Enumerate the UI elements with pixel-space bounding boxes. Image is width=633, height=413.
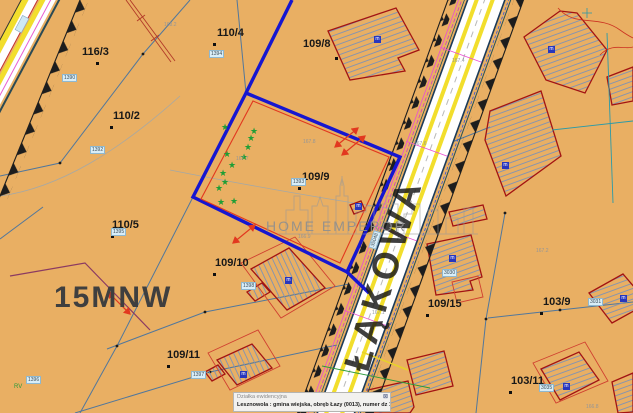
parcel-point-dot (426, 314, 429, 317)
zoning-label: 15MNW (54, 281, 172, 315)
tree-symbol: ★ (215, 184, 223, 193)
point-id-box: 1394 (209, 50, 224, 58)
land-use-label: RV (14, 384, 22, 390)
building-mark: m (620, 295, 627, 302)
elevation-label: 166.8 (586, 404, 599, 410)
elevation-label: 167.6 (414, 141, 427, 147)
parcel-point-dot (335, 57, 338, 60)
building-mark: m (563, 383, 570, 390)
parcel-point-dot (540, 312, 543, 315)
point-id-box: 3030 (442, 269, 457, 277)
tree-symbol: ★ (244, 143, 252, 152)
point-id-box: 1398 (241, 282, 256, 290)
building-mark: m (502, 162, 509, 169)
tree-symbol: ★ (228, 161, 236, 170)
parcel-point-dot (167, 365, 170, 368)
point-id-box: 1395 (111, 228, 126, 236)
parcel-info-panel: Działka ewidencyjna ⊠ Lesznowola : gmina… (233, 392, 391, 412)
parcel-label-109/15: 109/15 (428, 298, 462, 310)
parcel-label-109/8: 109/8 (303, 38, 331, 50)
building-mark: m (355, 203, 362, 210)
info-panel-description: Lesznowola : gmina wiejska, obręb Łazy (… (237, 402, 391, 408)
info-panel-title: Działka ewidencyjna (237, 394, 287, 400)
parcel-point-dot (213, 273, 216, 276)
point-id-box: 1397 (191, 371, 206, 379)
point-id-box: 1390 (62, 74, 77, 82)
elevation-label: 168.2 (164, 22, 177, 28)
elevation-label: 167.8 (303, 139, 316, 145)
building-mark: m (449, 255, 456, 262)
point-id-box: 1396 (26, 376, 41, 384)
point-id-box: 3035 (539, 384, 554, 392)
cadastral-basemap (0, 0, 633, 413)
elevation-label: 166.9 (298, 234, 311, 240)
tree-symbol: ★ (230, 197, 238, 206)
parcel-point-dot (110, 126, 113, 129)
parcel-label-109/9: 109/9 (302, 171, 330, 183)
tree-symbol: ★ (217, 198, 225, 207)
point-id-box: 1392 (90, 146, 105, 154)
parcel-label-110/2: 110/2 (113, 110, 140, 122)
parcel-label-109/11: 109/11 (167, 349, 200, 361)
tree-symbol: ★ (223, 150, 231, 159)
parcel-label-103/9: 103/9 (543, 296, 571, 308)
parcel-label-110/4: 110/4 (217, 27, 244, 39)
point-id-box: 3031 (588, 298, 603, 306)
parcel-label-109/10: 109/10 (215, 257, 249, 269)
watermark-text: HOME EMPEROR (266, 218, 407, 234)
elevation-label: 167.2 (536, 248, 549, 254)
building-mark: m (240, 371, 247, 378)
parcel-point-dot (96, 62, 99, 65)
building-mark: m (374, 36, 381, 43)
map-canvas[interactable]: ŁĄKOWA 35048 15MNW HOME EMPEROR RV 116/3… (0, 0, 633, 413)
tree-symbol: ★ (221, 123, 229, 132)
elevation-label: 167.7 (236, 156, 249, 162)
close-icon[interactable]: ⊠ (383, 393, 388, 400)
parcel-point-dot (213, 43, 216, 46)
parcel-point-dot (509, 391, 512, 394)
building-mark: m (285, 277, 292, 284)
parcel-point-dot (298, 187, 301, 190)
power-line (126, 0, 175, 62)
elevation-label: 167.1 (372, 310, 385, 316)
elevation-label: 167.4 (452, 58, 465, 64)
point-id-box: 1393 (291, 178, 306, 186)
building-mark: m (548, 46, 555, 53)
parcel-label-116/3: 116/3 (82, 46, 109, 58)
